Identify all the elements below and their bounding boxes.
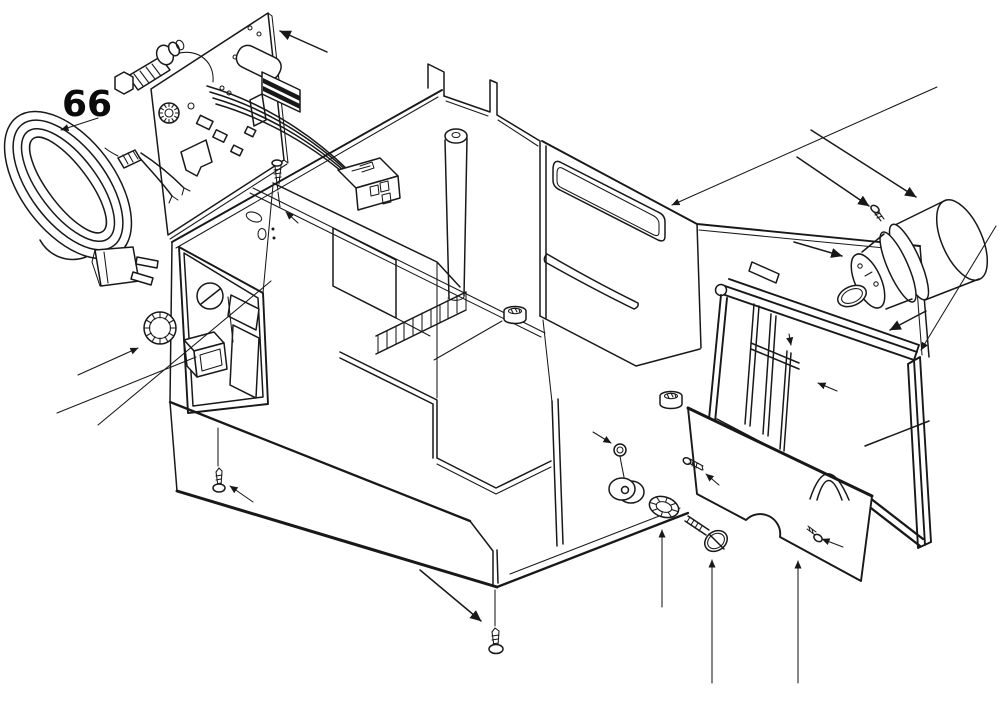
bottom-centre-screw [489,590,503,654]
frame-inner-rails [745,304,799,451]
pump-face-arrow [794,242,842,256]
diagram-canvas: 66 [0,0,1000,717]
interior-walls [340,320,563,546]
bottom-centre-screw-arrow [420,570,481,621]
front-lower-edge [177,491,497,587]
control-pcb [115,13,400,239]
harness-connector [338,158,400,210]
pcb-arrow [280,31,327,52]
pulley-wheel [609,478,644,503]
frame-rail-arrow-2 [818,383,837,391]
pcb-gear [159,103,179,123]
pump-screw [870,204,884,221]
frame-tab [749,262,779,283]
pump-screw-arrow [797,157,869,206]
centre-block [263,183,460,398]
cover-plate [682,408,872,581]
heatsink-fins [376,292,466,354]
front-corner [470,521,498,584]
frame-cap [716,285,727,296]
cord-run [40,240,86,259]
wall-floor-junction [250,188,545,337]
rubber-foot-1 [504,307,526,324]
plug-pin-1 [136,257,158,268]
plug-pin-2 [131,272,153,285]
fixing-screws [213,160,503,654]
bottom-left-screw [213,428,225,492]
floor-holes [245,210,276,239]
panel-cutout [553,161,665,241]
pump-motor [794,130,998,330]
frame-left-post [709,295,727,422]
nut-arrow [593,432,611,443]
mains-plug [92,247,158,286]
hex-nut [115,72,133,94]
rear-rim [542,141,920,246]
control-panel [179,247,268,413]
block-recess [333,228,396,318]
pump-body-arrow [811,130,916,197]
shoulder-screw [685,516,731,556]
frame-right-post [908,357,931,548]
pump-lower-arrow [890,311,926,330]
bottom-left-screw-arrow [230,486,253,502]
exploded-parts-diagram: 66 [0,0,1000,717]
panel-curved-slot [544,254,638,309]
rear-panel [540,142,701,366]
frame-rail-arrow-1 [789,334,791,345]
frame-top-rail [722,279,919,360]
front-right-edge [497,513,688,587]
lock-nut [614,444,626,456]
selector-knob [144,312,176,344]
callout-66-label: 66 [62,84,112,125]
callout-66: 66 [61,84,112,130]
knob-arrow [78,348,138,375]
rim-leader [672,87,937,205]
power-switch [184,332,227,377]
foot-leader [434,321,502,360]
rubber-foot-2 [660,392,682,409]
lower-window [230,325,259,398]
